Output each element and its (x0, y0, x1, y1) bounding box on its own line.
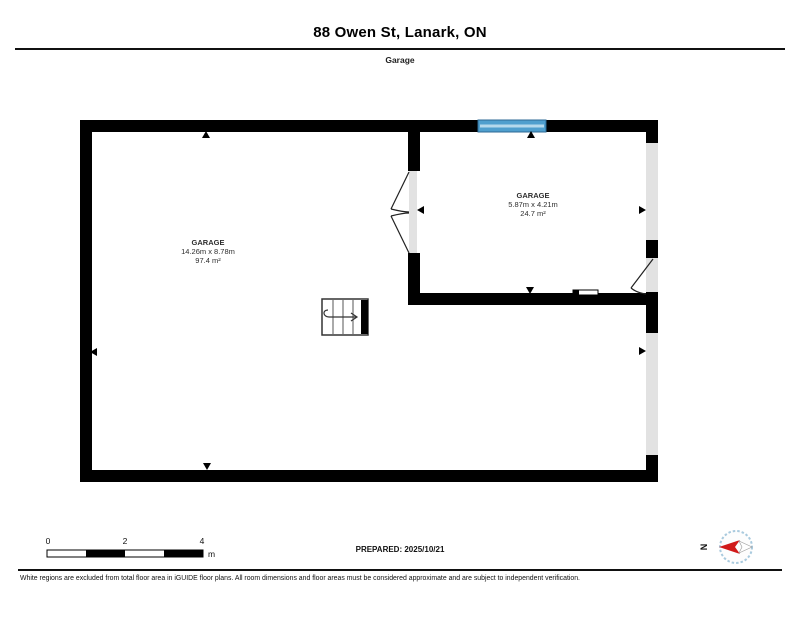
wall-divider-horizontal (408, 293, 658, 305)
dimension-arrow-small-right (639, 206, 646, 214)
dimension-arrow-small-left (417, 206, 424, 214)
room-name: GARAGE (181, 238, 235, 247)
wall-bottom (80, 470, 658, 482)
scale-tick-0: 0 (46, 536, 51, 546)
scale-tick-2: 2 (123, 536, 128, 546)
stairs-icon (322, 299, 368, 335)
wall-right-seg4 (646, 455, 658, 482)
room-name: GARAGE (508, 191, 558, 200)
double-door-icon (391, 172, 409, 253)
wall-panel-object (573, 290, 598, 295)
floor-plan-page: 88 Owen St, Lanark, ON Garage (0, 0, 800, 618)
window-icon (478, 120, 546, 132)
garage-door-opening-main-room (646, 333, 658, 455)
scale-bar (47, 550, 203, 557)
room-dimensions: 5.87m x 4.21m (508, 200, 558, 209)
room-area: 97.4 m² (181, 256, 235, 265)
double-door-threshold (409, 171, 417, 253)
swing-door-threshold (646, 258, 658, 292)
room-dimensions: 14.26m x 8.78m (181, 247, 235, 256)
dimension-arrow-main-right (639, 347, 646, 355)
disclaimer-text: White regions are excluded from total fl… (20, 575, 780, 582)
wall-divider-upper (408, 120, 420, 171)
wall-top (80, 120, 658, 132)
compass-icon: N (699, 531, 752, 563)
room-label-small-garage: GARAGE 5.87m x 4.21m 24.7 m² (508, 191, 558, 218)
wall-right-seg1 (646, 120, 658, 143)
floor-plan-graphic: N (0, 0, 800, 618)
room-label-main-garage: GARAGE 14.26m x 8.78m 97.4 m² (181, 238, 235, 265)
scale-unit-label: m (208, 549, 215, 559)
wall-right-seg2 (646, 240, 658, 258)
prepared-date: PREPARED: 2025/10/21 (356, 545, 445, 554)
wall-left (80, 120, 92, 482)
compass-north-label: N (699, 544, 709, 551)
garage-door-opening-small-room (646, 143, 658, 240)
dimension-arrow-main-top (202, 131, 210, 138)
room-area: 24.7 m² (508, 209, 558, 218)
scale-tick-4: 4 (200, 536, 205, 546)
dimension-arrow-main-bottom (203, 463, 211, 470)
dimension-arrow-small-bottom (526, 287, 534, 294)
footer-divider (18, 569, 782, 571)
